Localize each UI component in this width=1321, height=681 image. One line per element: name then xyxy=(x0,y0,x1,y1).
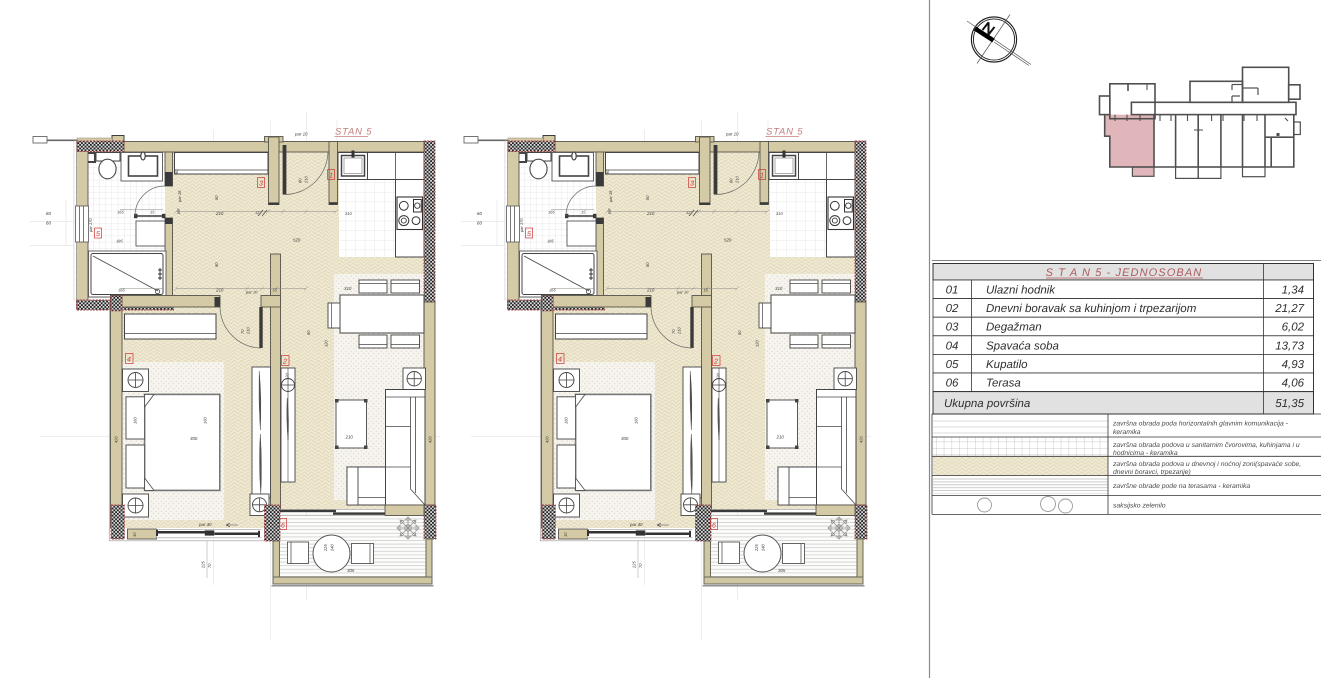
svg-text:04: 04 xyxy=(946,340,959,352)
svg-text:par 18: par 18 xyxy=(177,190,182,203)
svg-text:240: 240 xyxy=(330,544,335,552)
svg-text:par 10: par 10 xyxy=(245,290,258,295)
svg-text:02: 02 xyxy=(946,303,959,315)
svg-text:03: 03 xyxy=(946,322,959,334)
svg-text:par 40: par 40 xyxy=(198,522,212,527)
svg-text:završna obrada podova u sanita: završna obrada podova u sanitarnim čvoro… xyxy=(1112,442,1300,449)
svg-text:70: 70 xyxy=(207,563,212,568)
svg-text:01: 01 xyxy=(946,285,959,297)
svg-text:80: 80 xyxy=(214,262,219,267)
svg-text:6,02: 6,02 xyxy=(1282,322,1305,334)
svg-text:Dnevni boravak sa kuhinjom i t: Dnevni boravak sa kuhinjom i trpezarijom xyxy=(986,303,1197,315)
svg-text:keramika: keramika xyxy=(1113,429,1141,436)
svg-text:420: 420 xyxy=(428,436,433,443)
svg-text:dnevni boravci, trpezarije): dnevni boravci, trpezarije) xyxy=(1113,469,1191,476)
svg-text:165: 165 xyxy=(117,210,124,215)
svg-text:S T A N 5 - JEDNOSOBAN: S T A N 5 - JEDNOSOBAN xyxy=(1046,267,1203,279)
svg-text:225: 225 xyxy=(201,561,206,569)
svg-text:4: 4 xyxy=(127,357,131,364)
svg-text:15: 15 xyxy=(150,210,155,215)
svg-text:80: 80 xyxy=(306,330,311,335)
svg-text:STAN 5: STAN 5 xyxy=(335,127,372,138)
svg-text:225: 225 xyxy=(323,544,328,552)
svg-text:Degažman: Degažman xyxy=(986,322,1042,334)
svg-text:Ulazni hodnik: Ulazni hodnik xyxy=(986,285,1056,297)
svg-text:Kupatilo: Kupatilo xyxy=(986,359,1028,371)
svg-text:Ukupna površina: Ukupna površina xyxy=(944,398,1030,410)
svg-text:21,27: 21,27 xyxy=(1274,303,1304,315)
svg-text:par 170: par 170 xyxy=(88,218,93,233)
svg-text:5: 5 xyxy=(96,231,100,238)
svg-text:210: 210 xyxy=(215,288,224,293)
svg-text:1: 1 xyxy=(329,173,333,180)
svg-text:160: 160 xyxy=(133,417,138,424)
svg-text:210: 210 xyxy=(246,327,251,335)
svg-text:60: 60 xyxy=(46,221,51,226)
svg-text:13,73: 13,73 xyxy=(1275,340,1304,352)
svg-text:305: 305 xyxy=(347,568,355,573)
svg-text:15: 15 xyxy=(273,288,278,293)
svg-text:60: 60 xyxy=(46,211,51,216)
svg-text:310: 310 xyxy=(344,286,352,291)
svg-text:420: 420 xyxy=(114,436,119,443)
svg-text:10: 10 xyxy=(132,532,137,537)
svg-text:70: 70 xyxy=(240,329,245,334)
svg-text:saksijsko zelenilo: saksijsko zelenilo xyxy=(1113,503,1166,510)
svg-text:165: 165 xyxy=(118,288,125,293)
svg-text:300: 300 xyxy=(190,436,198,441)
svg-text:6: 6 xyxy=(281,523,285,530)
svg-text:520: 520 xyxy=(293,238,301,243)
svg-text:završna obrada podova u dnevno: završna obrada podova u dnevnoj i noćnoj… xyxy=(1112,461,1301,468)
svg-text:51,35: 51,35 xyxy=(1275,398,1304,410)
svg-text:185: 185 xyxy=(116,239,123,244)
svg-text:05: 05 xyxy=(946,359,959,371)
svg-text:4,93: 4,93 xyxy=(1282,359,1305,371)
svg-text:210: 210 xyxy=(304,176,309,184)
svg-text:Spavaća soba: Spavaća soba xyxy=(986,340,1059,352)
svg-text:80: 80 xyxy=(298,178,303,183)
svg-text:120: 120 xyxy=(285,373,290,380)
svg-text:2: 2 xyxy=(282,359,287,366)
svg-text:06: 06 xyxy=(946,378,959,390)
svg-text:par 10: par 10 xyxy=(294,132,308,137)
svg-text:Terasa: Terasa xyxy=(986,378,1021,390)
svg-text:310: 310 xyxy=(345,211,352,216)
svg-text:160: 160 xyxy=(203,417,208,424)
svg-text:završne obrade pode na terasam: završne obrade pode na terasama - kerami… xyxy=(1112,483,1250,490)
svg-text:par: par xyxy=(176,208,181,215)
svg-text:210: 210 xyxy=(215,211,224,216)
svg-text:80: 80 xyxy=(214,195,219,200)
svg-text:1,34: 1,34 xyxy=(1282,285,1304,297)
svg-text:završna obrada poda horizontal: završna obrada poda horizontalnih glavni… xyxy=(1112,421,1289,428)
svg-text:80: 80 xyxy=(174,169,179,174)
svg-text:210: 210 xyxy=(345,435,354,440)
svg-text:3: 3 xyxy=(259,181,263,188)
svg-text:120: 120 xyxy=(324,340,329,347)
svg-text:hodnicima - keramika: hodnicima - keramika xyxy=(1113,450,1178,457)
svg-text:4,06: 4,06 xyxy=(1282,378,1305,390)
